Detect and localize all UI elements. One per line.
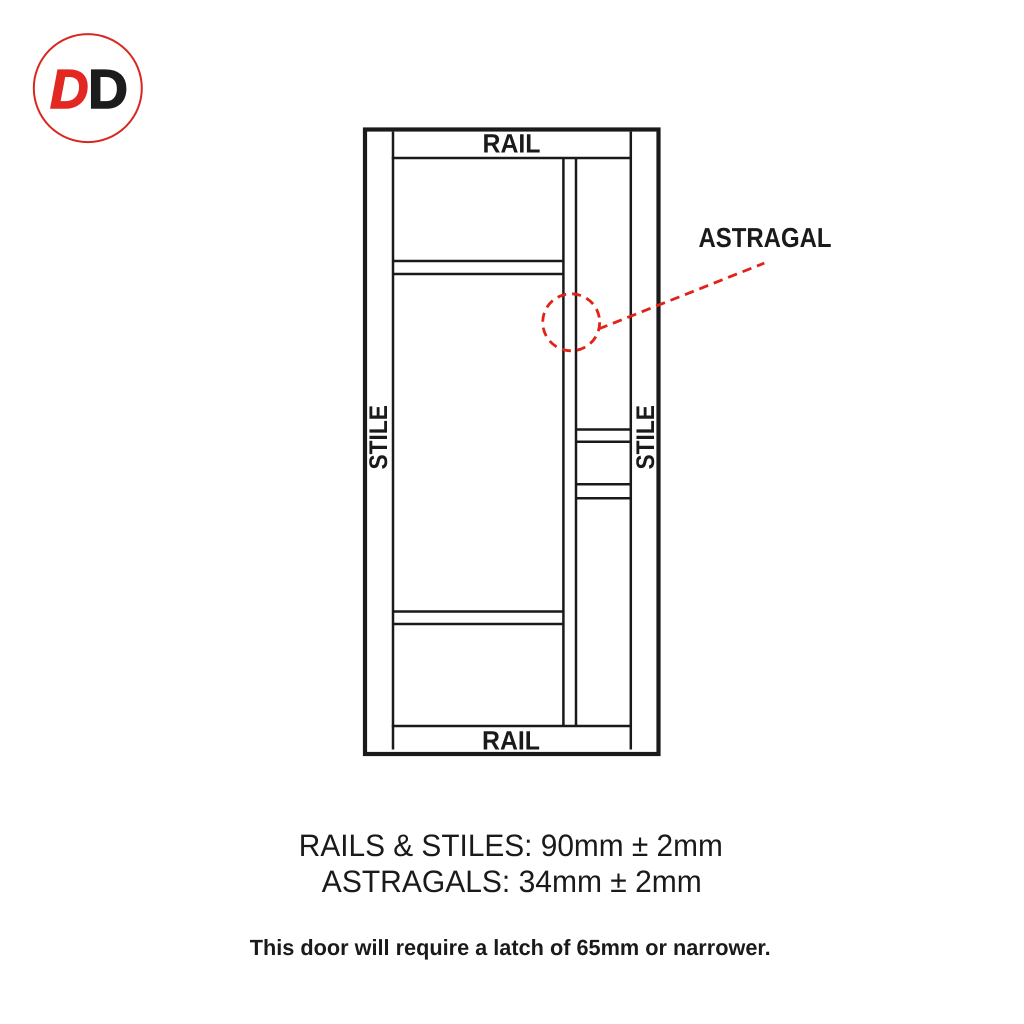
svg-text:D: D (50, 58, 89, 120)
svg-text:STILE: STILE (632, 405, 660, 470)
svg-text:ASTRAGALS: 34mm ± 2mm: ASTRAGALS: 34mm ± 2mm (322, 864, 702, 899)
svg-text:D: D (88, 58, 128, 120)
svg-text:RAIL: RAIL (483, 128, 541, 158)
svg-text:This door will require a latch: This door will require a latch of 65mm o… (250, 935, 771, 960)
svg-text:STILE: STILE (365, 405, 393, 470)
svg-text:RAIL: RAIL (482, 726, 540, 756)
svg-text:ASTRAGAL: ASTRAGAL (699, 222, 832, 253)
svg-text:RAILS & STILES: 90mm ± 2mm: RAILS & STILES: 90mm ± 2mm (299, 828, 723, 863)
